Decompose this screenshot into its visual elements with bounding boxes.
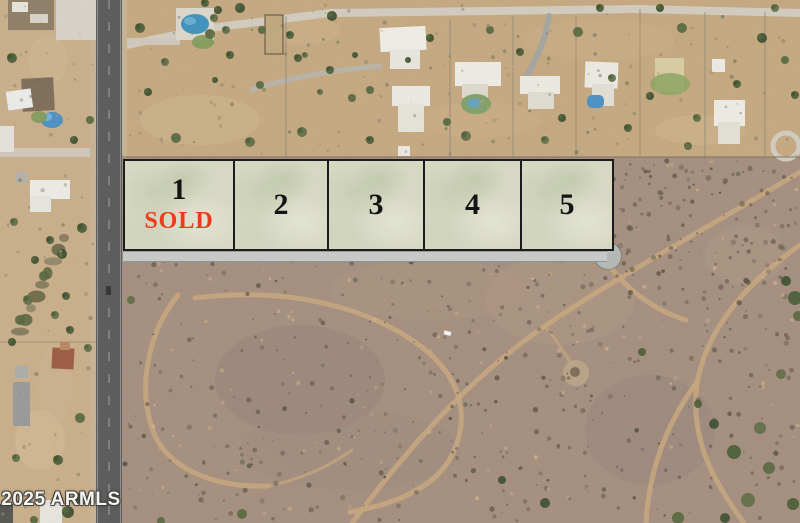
lot-number: 3 [369, 190, 384, 220]
armls-watermark: © 2025 ARMLS [0, 489, 121, 511]
aerial-map: 1 SOLD 2 3 4 5 © 2025 ARMLS [0, 0, 800, 523]
lot-number: 2 [274, 190, 289, 220]
lot-number: 1 [172, 175, 187, 205]
lot-parcel-2: 2 [233, 159, 329, 251]
lot-parcel-5: 5 [520, 159, 614, 251]
lot-parcel-1: 1 SOLD [123, 159, 235, 251]
lot-number: 4 [465, 190, 480, 220]
lot-status-sold: SOLD [144, 208, 213, 234]
lot-parcel-4: 4 [423, 159, 522, 251]
lot-parcel-3: 3 [327, 159, 425, 251]
access-road-bar [123, 251, 607, 262]
lot-number: 5 [560, 190, 575, 220]
